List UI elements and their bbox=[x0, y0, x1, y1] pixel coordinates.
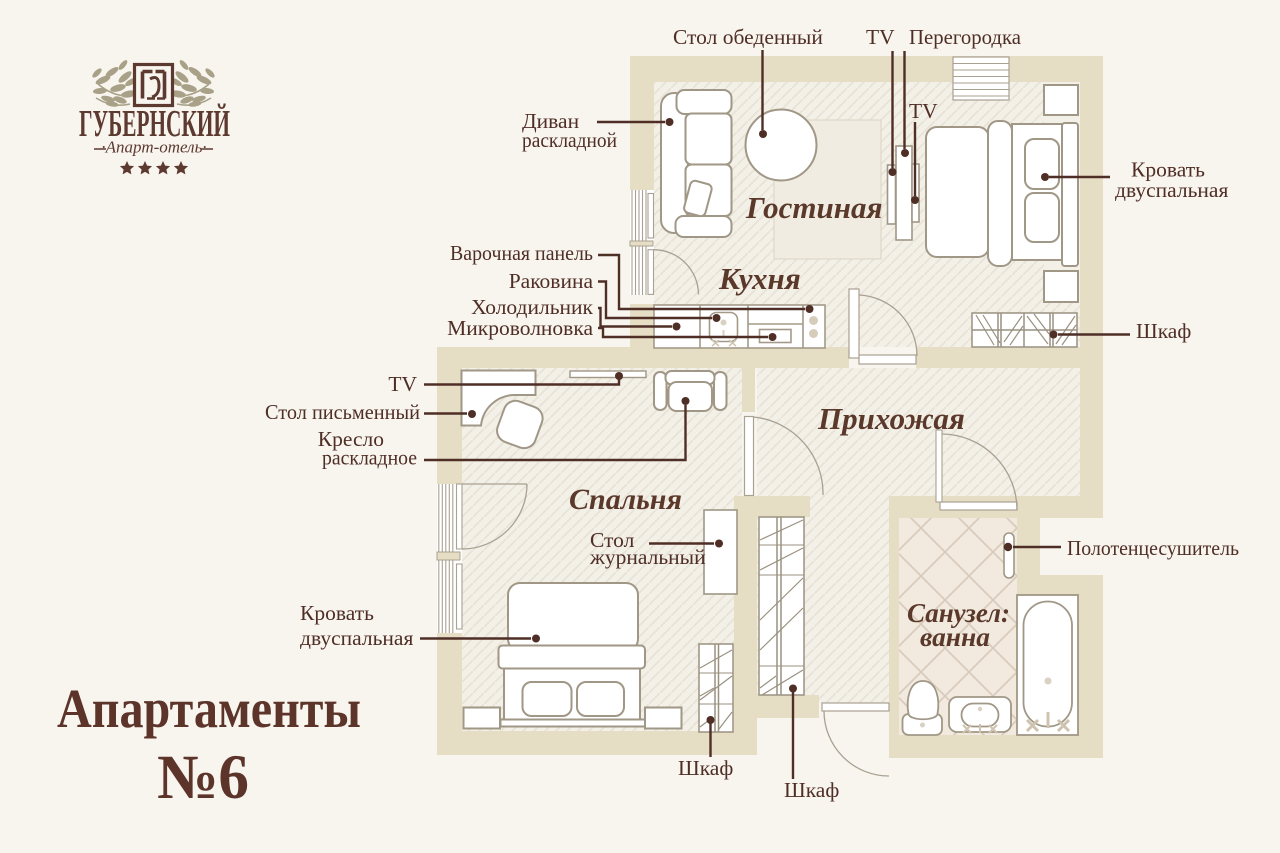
svg-text:TV: TV bbox=[388, 372, 417, 396]
svg-text:Перегородка: Перегородка bbox=[909, 25, 1021, 49]
svg-text:TV: TV bbox=[866, 25, 895, 49]
svg-text:Гостиная: Гостиная bbox=[745, 190, 882, 225]
svg-text:Раковина: Раковина bbox=[509, 269, 594, 293]
svg-text:Спальня: Спальня bbox=[569, 483, 682, 516]
svg-text:№6: №6 bbox=[157, 742, 249, 812]
svg-text:Прихожая: Прихожая bbox=[817, 401, 965, 436]
svg-text:Стол письменный: Стол письменный bbox=[265, 400, 420, 424]
svg-text:Варочная панель: Варочная панель bbox=[450, 241, 593, 265]
svg-text:·Апарт-отель·: ·Апарт-отель· bbox=[101, 138, 206, 157]
svg-text:Кровать: Кровать bbox=[300, 601, 374, 625]
svg-text:Полотенцесушитель: Полотенцесушитель bbox=[1067, 536, 1239, 560]
svg-text:Апартаменты: Апартаменты bbox=[57, 678, 361, 739]
svg-text:Кухня: Кухня bbox=[718, 261, 801, 296]
svg-text:двуспальная: двуспальная bbox=[1115, 178, 1228, 202]
svg-text:Шкаф: Шкаф bbox=[784, 778, 839, 802]
svg-text:раскладное: раскладное bbox=[322, 446, 417, 470]
svg-text:Шкаф: Шкаф bbox=[678, 756, 733, 780]
svg-text:журнальный: журнальный bbox=[589, 545, 706, 569]
svg-text:двуспальная: двуспальная bbox=[300, 626, 413, 650]
svg-text:Стол обеденный: Стол обеденный bbox=[673, 25, 823, 49]
svg-text:раскладной: раскладной bbox=[522, 128, 617, 152]
svg-text:ванна: ванна bbox=[920, 622, 990, 652]
svg-text:Шкаф: Шкаф bbox=[1136, 319, 1191, 343]
svg-text:Микроволновка: Микроволновка bbox=[447, 316, 593, 340]
svg-text:TV: TV bbox=[909, 99, 938, 123]
